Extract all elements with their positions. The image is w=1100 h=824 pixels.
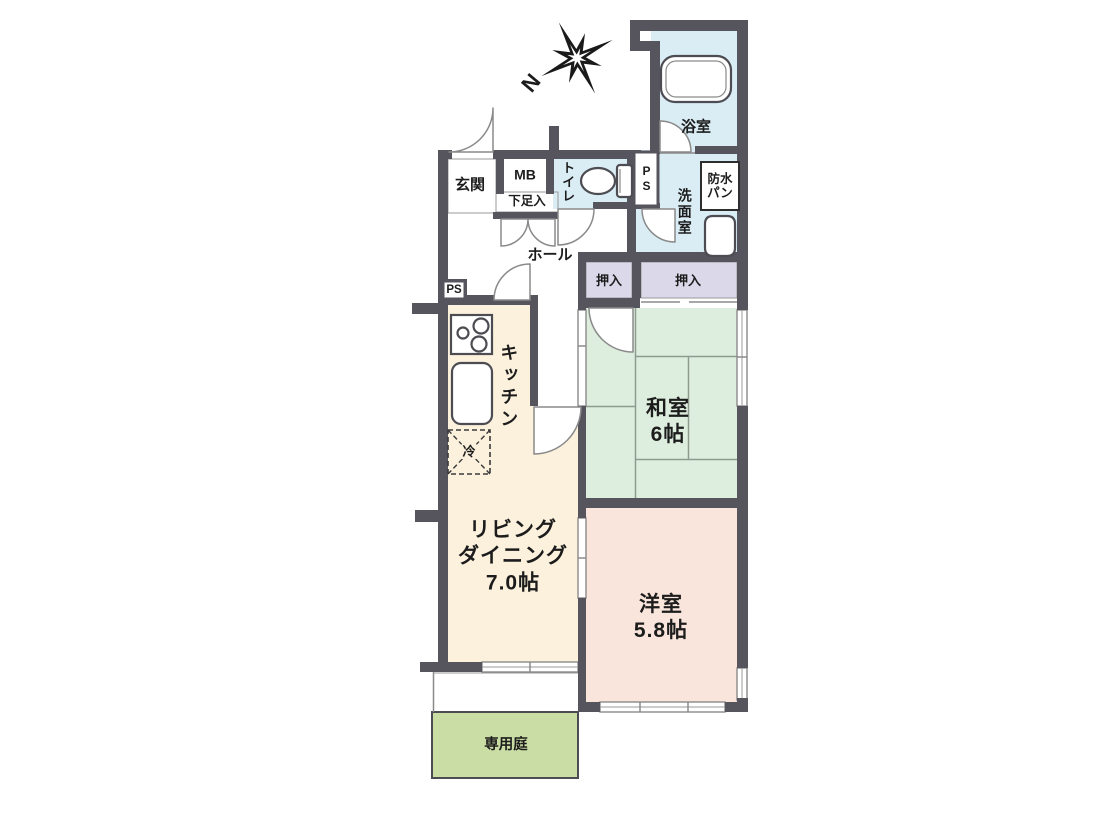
shoe-cabinet-label: 下足入	[508, 194, 546, 210]
washbasin-icon	[705, 216, 735, 256]
western-room-label: 洋室 5.8帖	[634, 592, 688, 645]
japanese-room-size: 6帖	[646, 422, 690, 448]
compass-star-icon	[541, 22, 612, 93]
western-room-window-side	[737, 668, 747, 700]
entrance-label: 玄関	[455, 177, 485, 196]
living-dining-name-line2: ダイニング	[458, 544, 568, 570]
shoe-cabinet-door-right	[528, 219, 555, 246]
japanese-room-window	[737, 310, 747, 406]
western-room-window-bottom	[600, 702, 725, 712]
bathtub-icon	[661, 56, 731, 102]
sliding-door-living-western	[578, 518, 586, 598]
bathroom-label: 浴室	[681, 119, 711, 138]
western-room-size: 5.8帖	[634, 618, 688, 644]
pipe-space-lower-label: PS	[446, 283, 461, 297]
waterproof-pan-line2: パン	[707, 186, 733, 200]
japanese-room-name: 和室	[646, 396, 690, 422]
private-garden-label: 専用庭	[484, 736, 528, 754]
sliding-door-hall-japanese	[578, 310, 586, 406]
hall-label: ホール	[527, 247, 572, 266]
floor-plan-geometry	[0, 0, 1100, 824]
kitchen-label: キッチン	[497, 343, 520, 431]
living-dining-name-line1: リビング	[458, 518, 568, 544]
hall-floor	[534, 305, 582, 407]
closet-left-label: 押入	[596, 273, 622, 289]
closet-right-label: 押入	[675, 273, 701, 289]
living-dining-size: 7.0帖	[458, 570, 568, 596]
stove-icon	[451, 315, 492, 354]
refrigerator-label: 冷	[461, 444, 476, 460]
refrigerator-char: 冷	[461, 444, 476, 459]
living-window	[482, 662, 578, 672]
entrance-door-swing	[449, 108, 493, 152]
washroom-label: 洗面室	[675, 188, 693, 236]
pipe-space-upper-label: PS	[639, 164, 654, 194]
shoe-cabinet-door-left	[501, 219, 528, 246]
waterproof-pan-line1: 防水	[707, 172, 732, 186]
toilet-label: トイレ	[559, 161, 575, 203]
toilet-icon	[581, 165, 632, 197]
kitchen-door-swing	[494, 264, 530, 300]
meter-box-label: MB	[514, 166, 536, 184]
japanese-room-label: 和室 6帖	[646, 396, 690, 449]
living-dining-label: リビング ダイニング 7.0帖	[458, 518, 568, 597]
sink-icon	[452, 363, 492, 424]
waterproof-pan-label: 防水 パン	[700, 161, 740, 211]
toilet-door-swing	[558, 209, 594, 245]
floor-plan: N 玄関 MB 下足入 トイレ PS 浴室 防水 パン 洗面室 ホール PS キ…	[0, 0, 1100, 824]
western-room-name: 洋室	[634, 592, 688, 618]
